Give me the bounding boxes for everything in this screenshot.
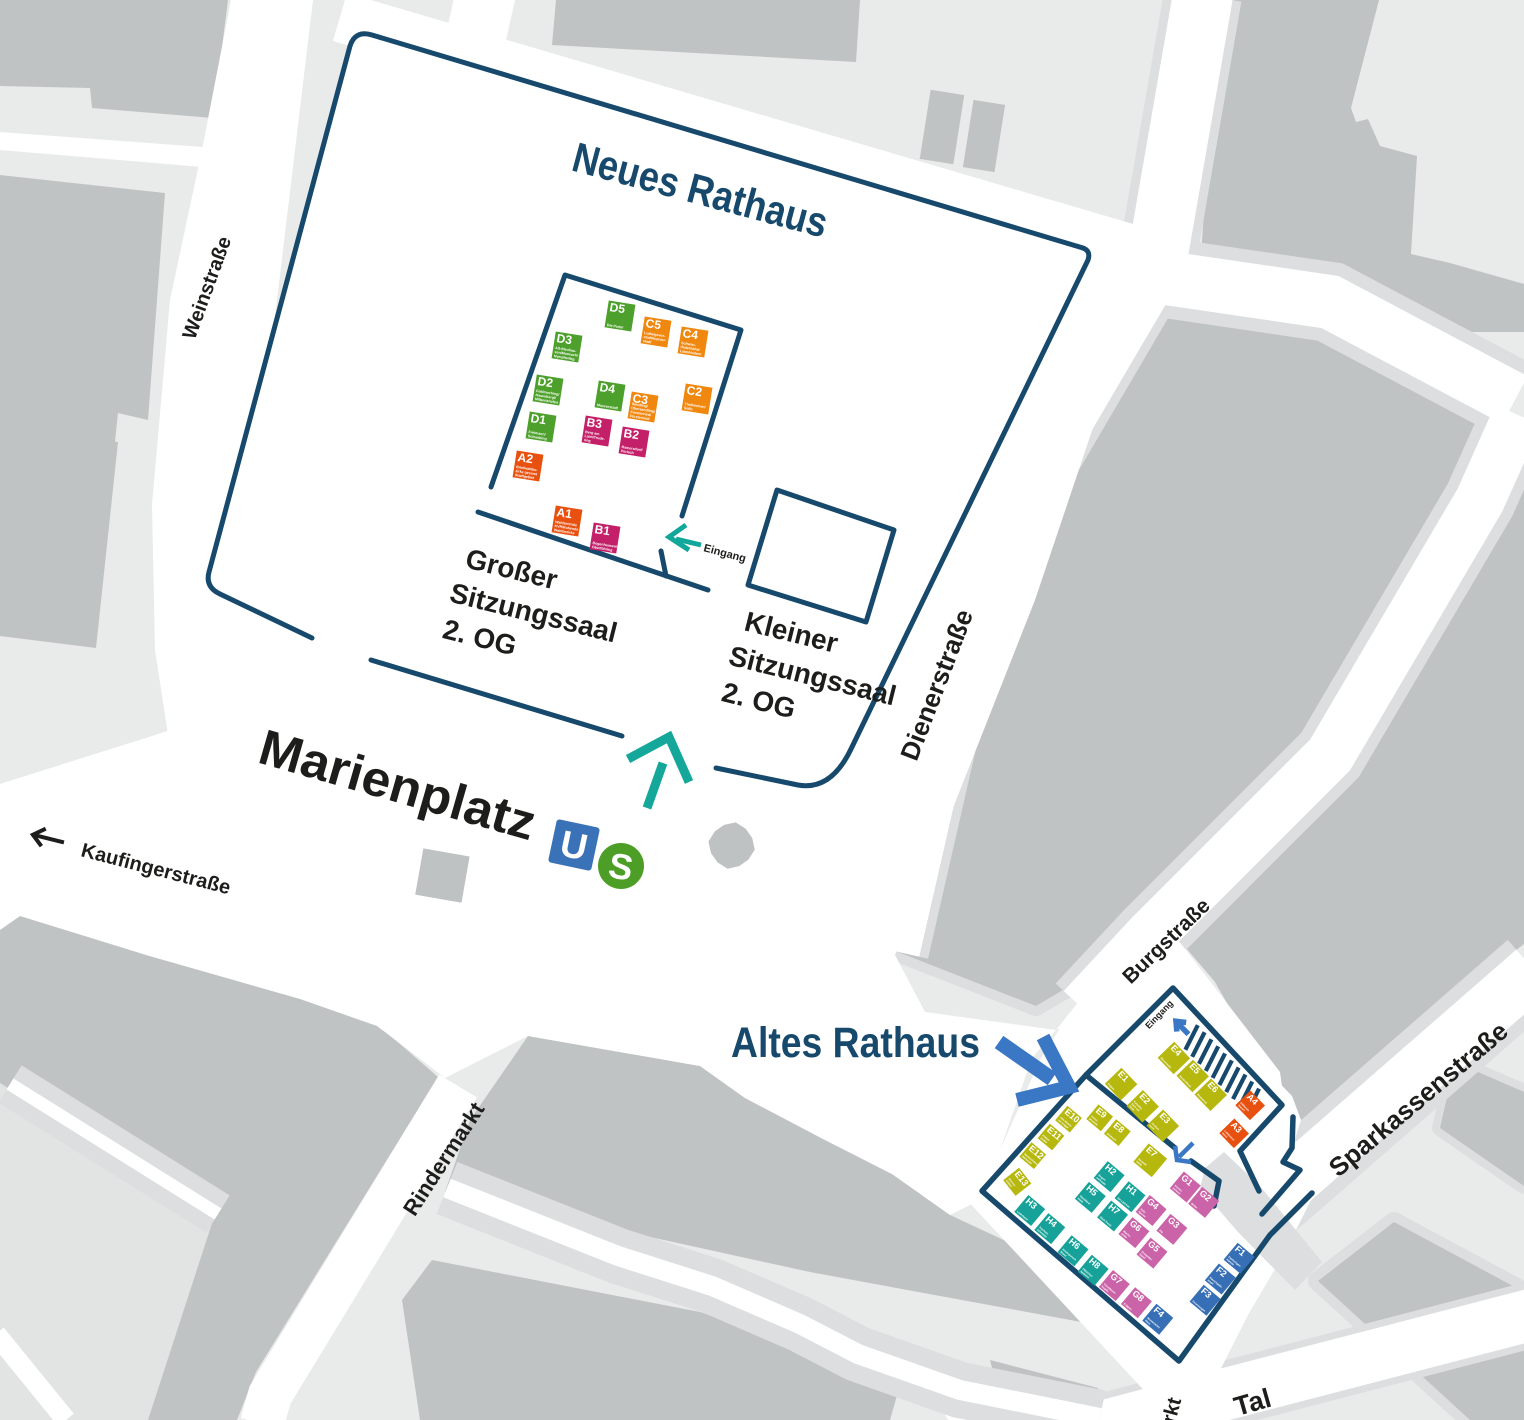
svg-text:B1: B1 — [594, 522, 612, 538]
svg-text:D3: D3 — [556, 331, 574, 347]
svg-text:C2: C2 — [686, 383, 704, 399]
svg-text:Altes Rathaus: Altes Rathaus — [731, 1019, 980, 1067]
svg-text:D2: D2 — [537, 374, 555, 390]
svg-text:C5: C5 — [645, 316, 663, 332]
svg-text:C4: C4 — [682, 326, 700, 342]
svg-text:A1: A1 — [556, 505, 574, 521]
svg-text:A2: A2 — [517, 450, 535, 466]
svg-text:D5: D5 — [609, 300, 627, 316]
svg-text:D4: D4 — [599, 380, 617, 396]
svg-text:B3: B3 — [586, 415, 604, 431]
svg-text:B2: B2 — [623, 426, 641, 442]
svg-text:D1: D1 — [530, 411, 548, 427]
